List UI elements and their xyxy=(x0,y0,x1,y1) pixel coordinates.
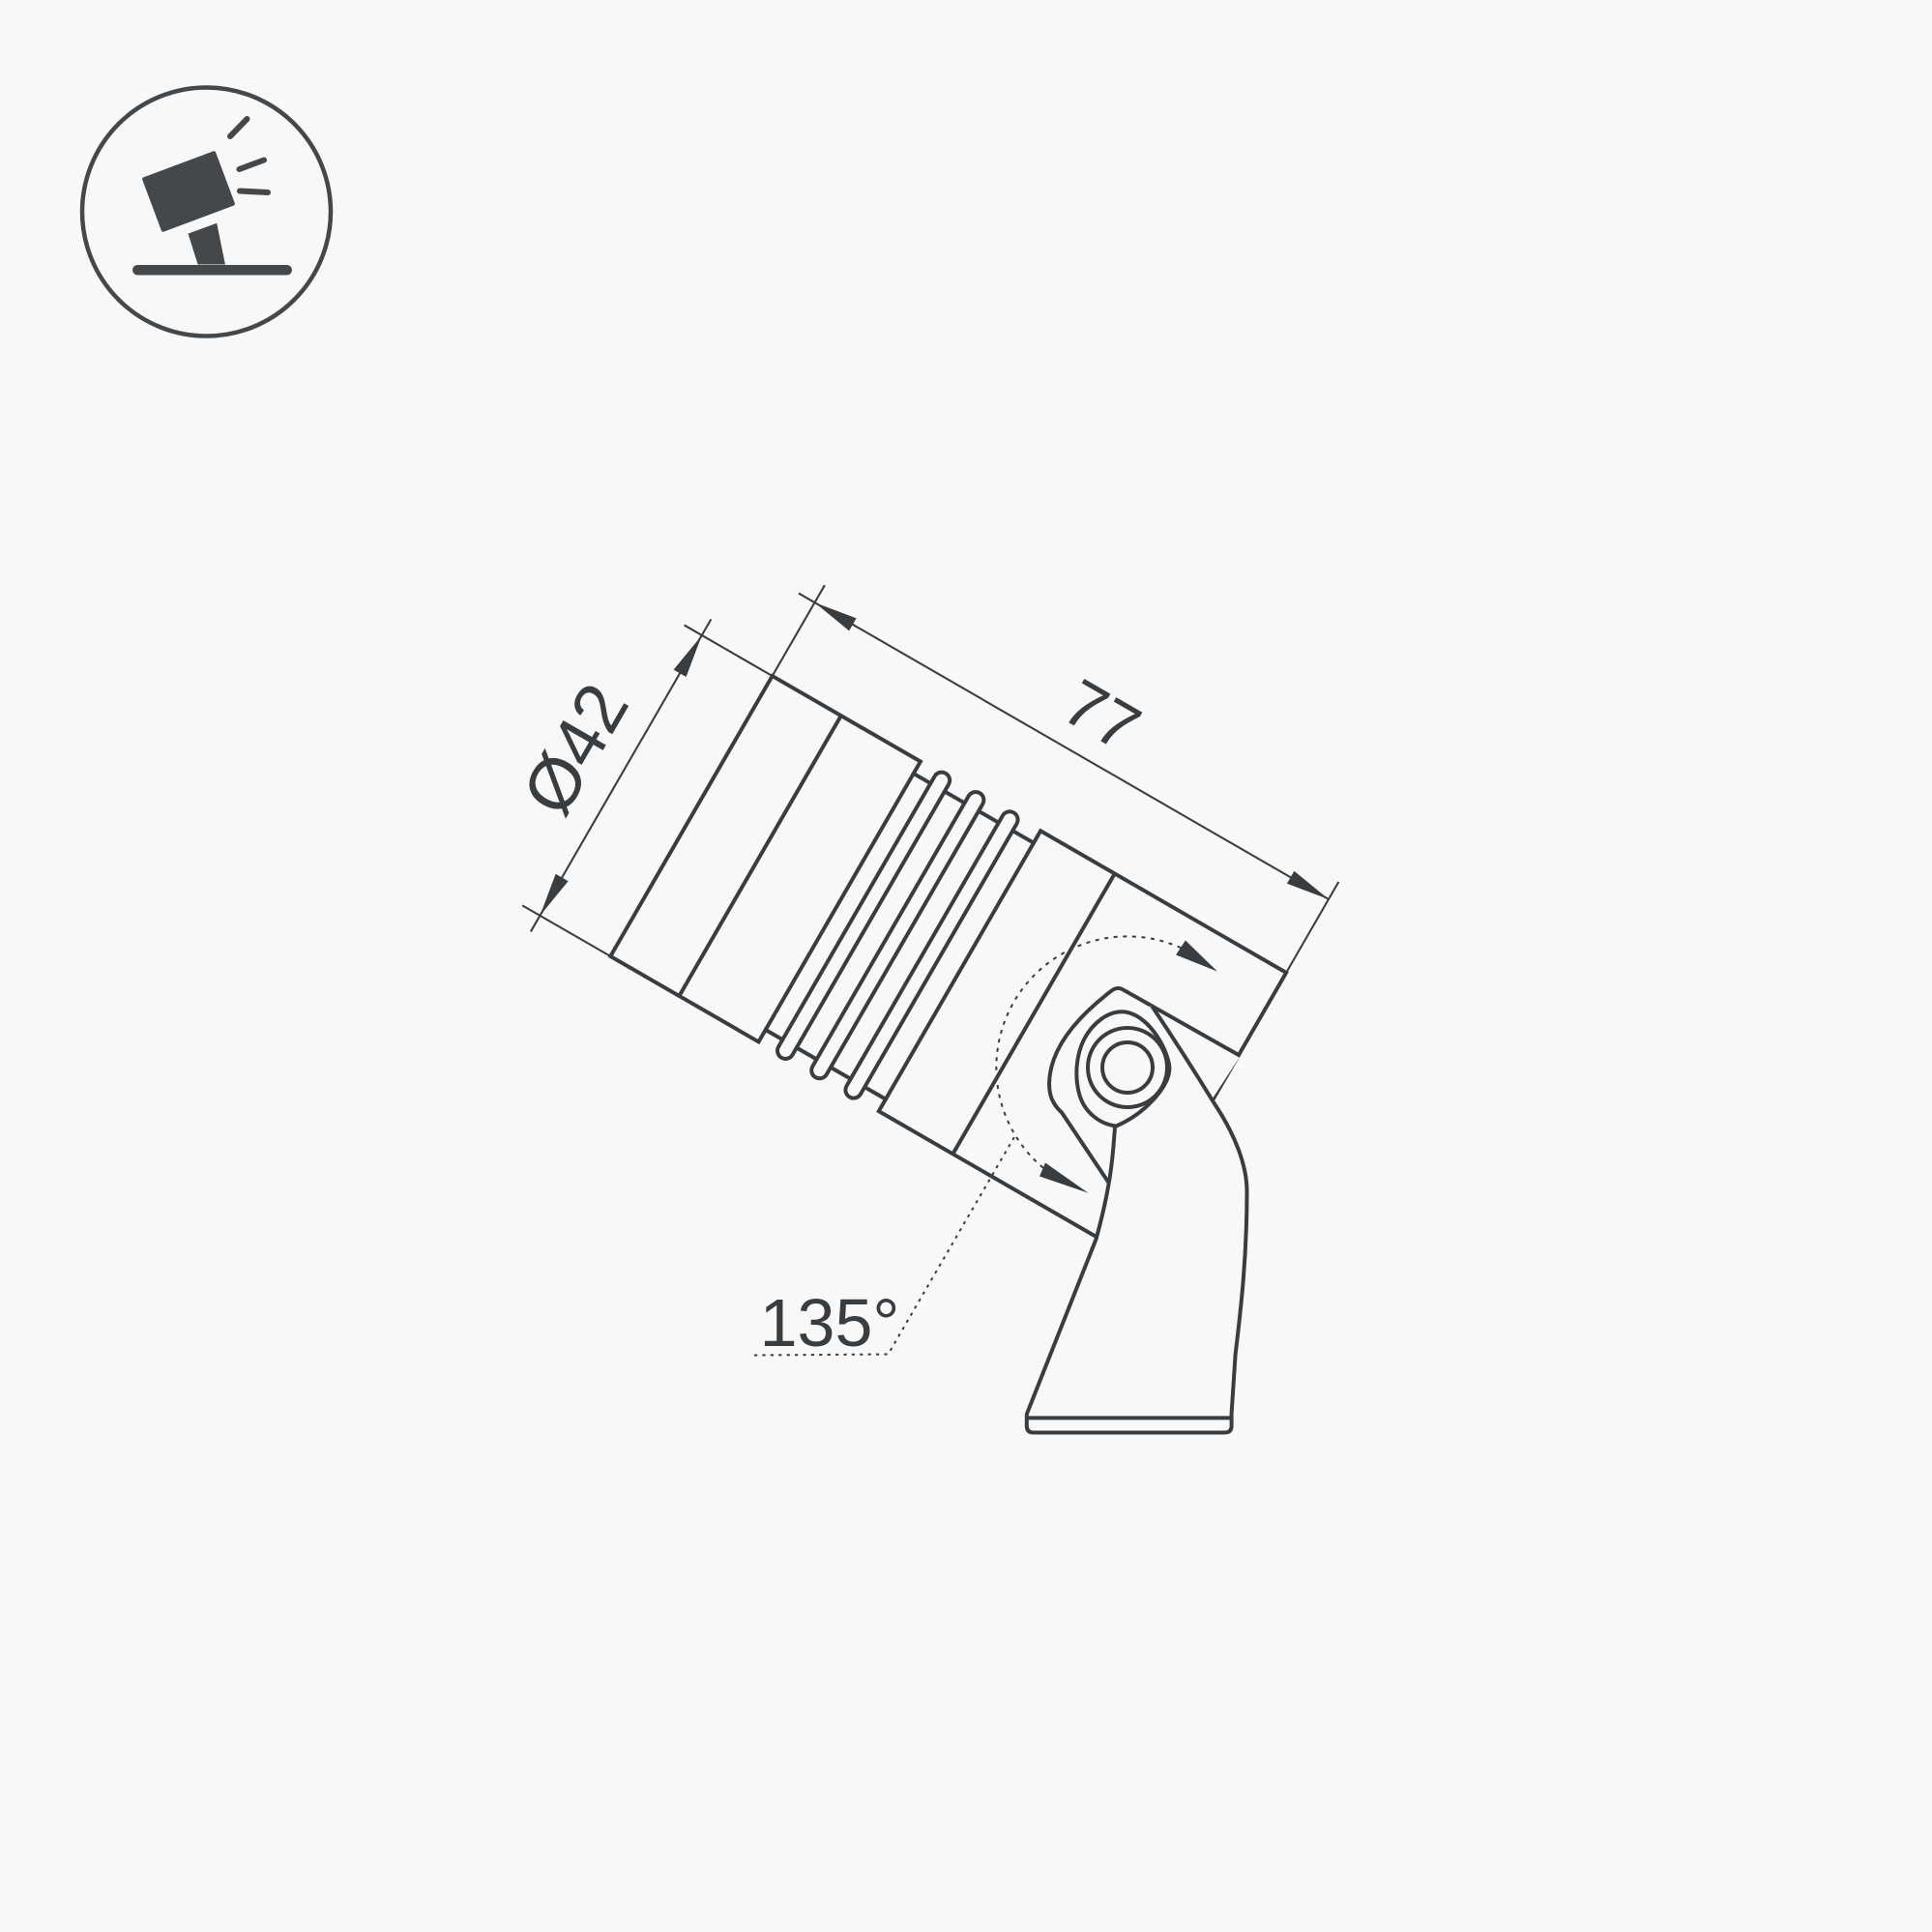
svg-text:135°: 135° xyxy=(760,1285,900,1361)
